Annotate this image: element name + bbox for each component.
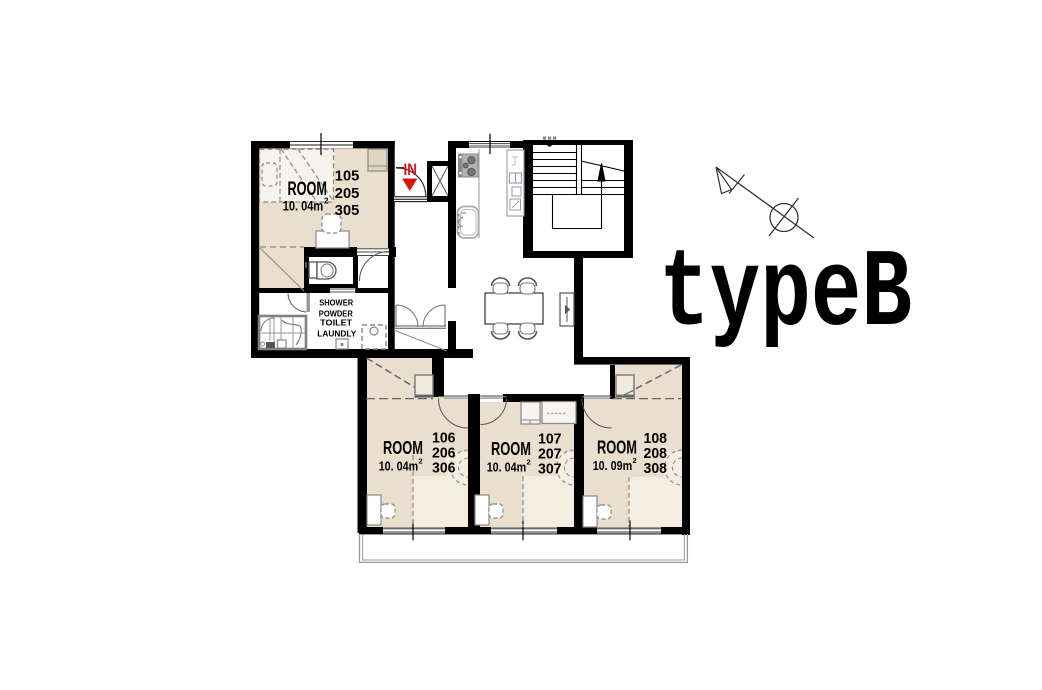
svg-text:2: 2: [419, 457, 423, 466]
svg-text:SHOWER: SHOWER: [319, 297, 354, 307]
svg-text:IN: IN: [404, 161, 418, 179]
svg-text:308: 308: [644, 461, 668, 477]
svg-text:TOILET: TOILET: [320, 317, 353, 327]
svg-text:ROOM: ROOM: [383, 438, 423, 458]
svg-text:ROOM: ROOM: [597, 438, 637, 458]
svg-text:ROOM: ROOM: [288, 178, 328, 200]
svg-text:207: 207: [538, 447, 562, 463]
svg-text:10. 04m: 10. 04m: [379, 459, 419, 474]
svg-text:208: 208: [644, 446, 668, 462]
svg-text:10. 04m: 10. 04m: [487, 460, 527, 475]
svg-text:105: 105: [335, 169, 360, 185]
svg-text:2: 2: [633, 456, 637, 465]
svg-text:205: 205: [335, 186, 360, 202]
svg-text:206: 206: [432, 446, 456, 462]
svg-text:LAUNDLY: LAUNDLY: [317, 328, 356, 338]
svg-text:typeB: typeB: [659, 233, 912, 358]
svg-text:10. 09m: 10. 09m: [593, 458, 633, 473]
svg-text:ROOM: ROOM: [491, 439, 531, 459]
svg-text:307: 307: [538, 462, 562, 478]
svg-text:106: 106: [432, 431, 456, 447]
svg-text:107: 107: [538, 432, 562, 448]
svg-text:2: 2: [324, 197, 329, 206]
svg-text:306: 306: [432, 461, 456, 477]
svg-text:108: 108: [644, 431, 668, 447]
svg-text:305: 305: [335, 203, 360, 219]
svg-text:2: 2: [527, 458, 531, 467]
svg-text:10. 04m: 10. 04m: [283, 199, 324, 214]
